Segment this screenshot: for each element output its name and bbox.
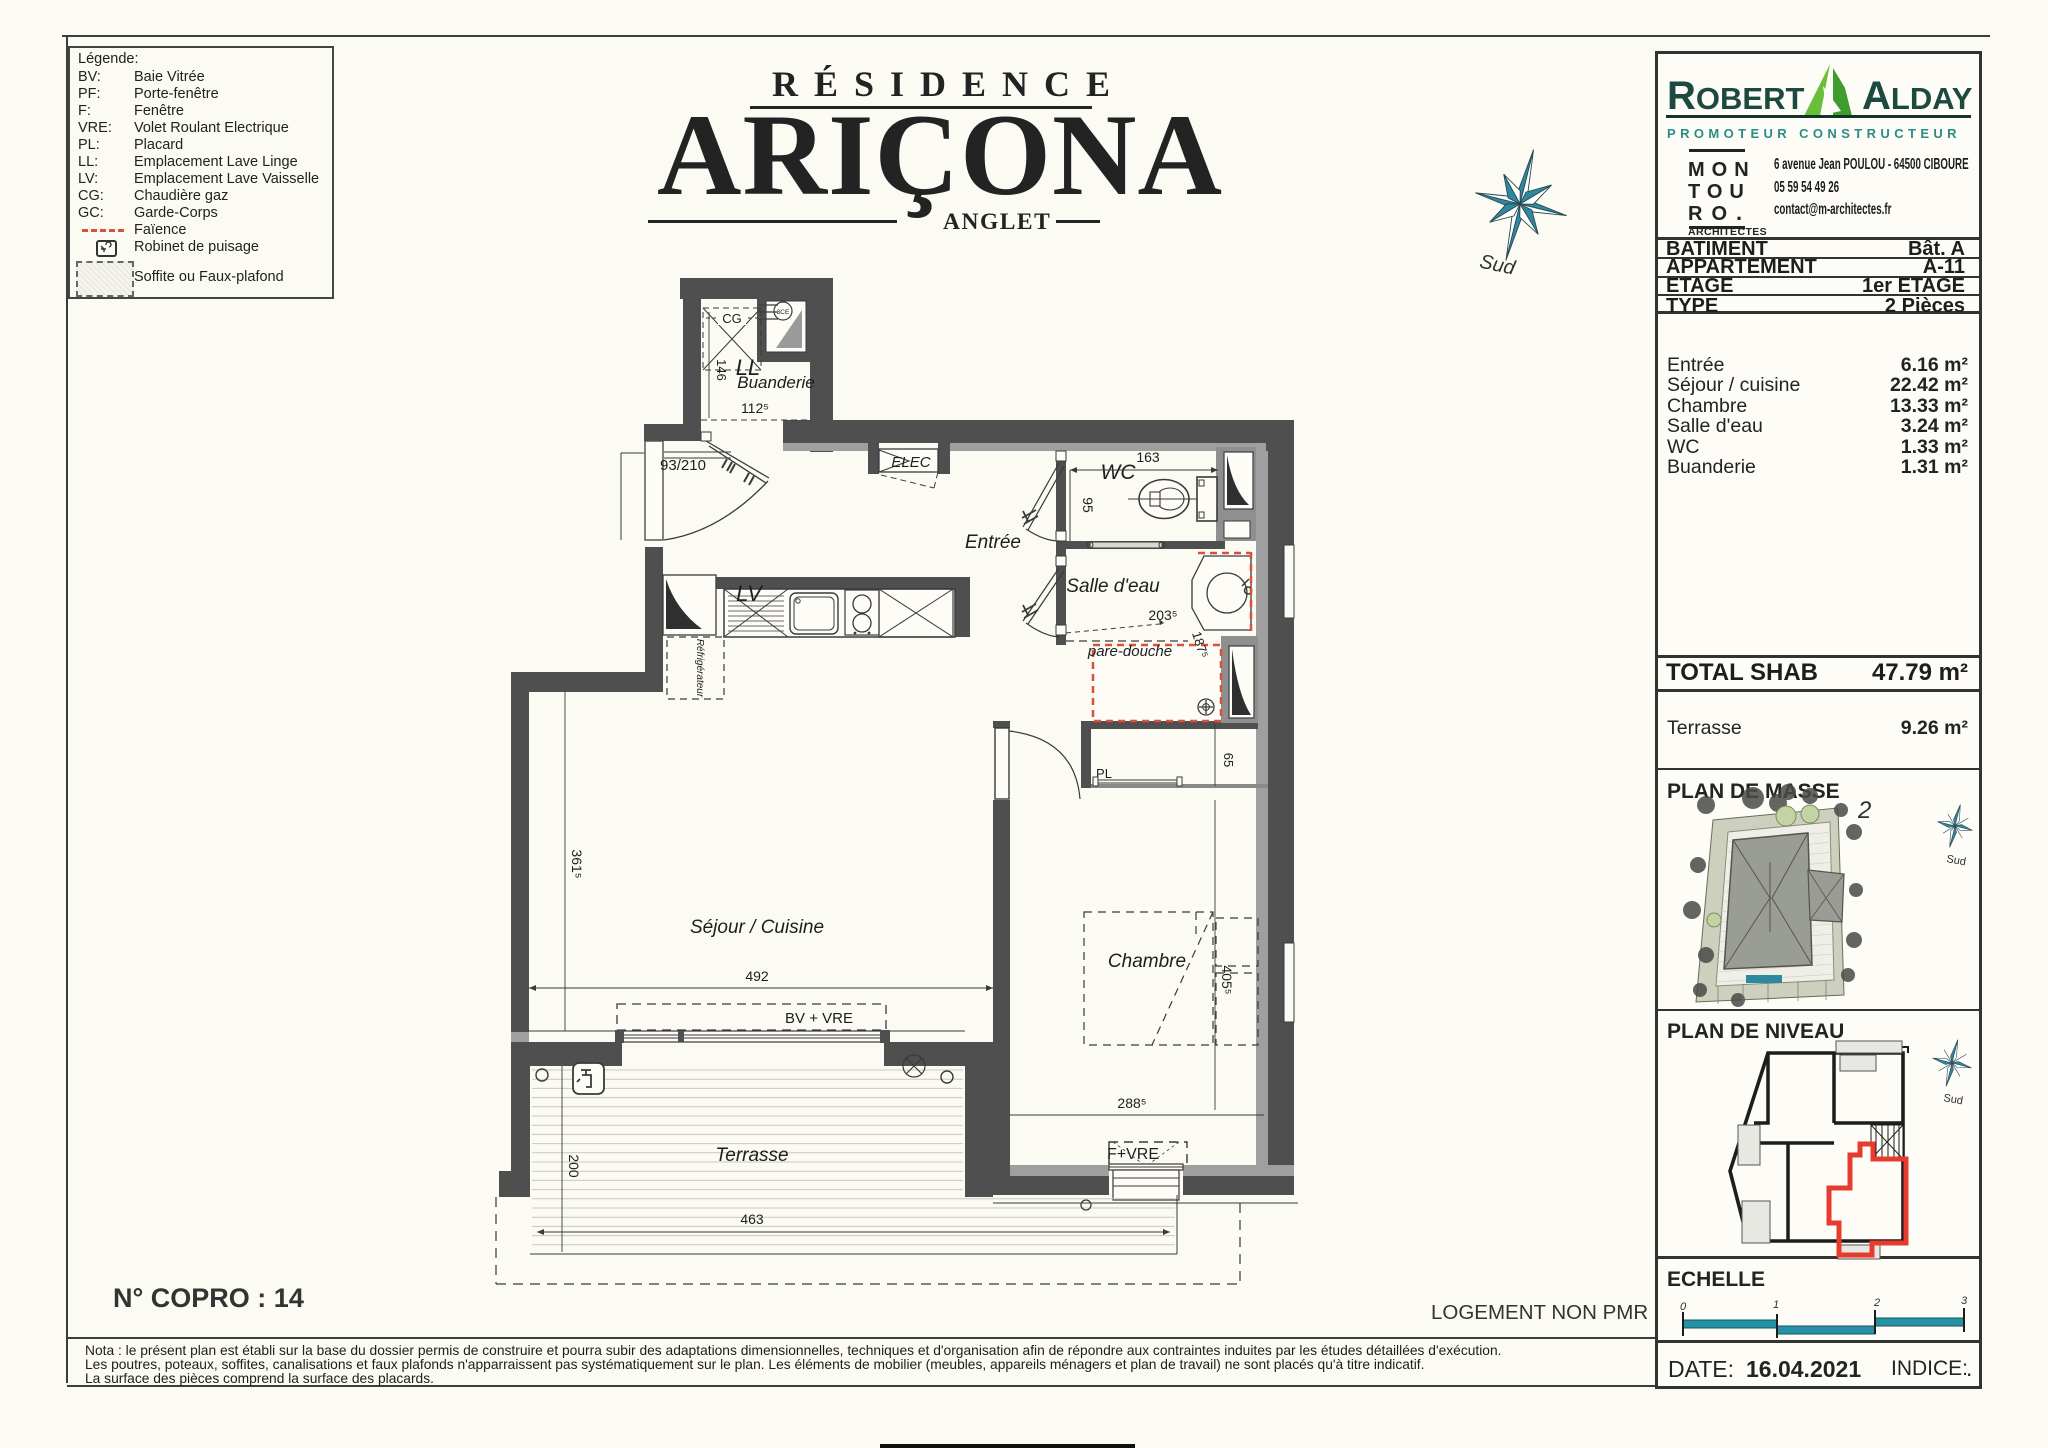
svg-text:163: 163	[1136, 449, 1160, 465]
svg-text:MON: MON	[1688, 159, 1756, 181]
svg-text:146: 146	[714, 359, 729, 381]
svg-text:65: 65	[1221, 753, 1236, 767]
svg-text:203⁵: 203⁵	[1148, 607, 1177, 623]
svg-text:95: 95	[1080, 497, 1096, 513]
svg-text:Salle d'eau: Salle d'eau	[1066, 576, 1160, 597]
svg-text:05 59 54 49 26: 05 59 54 49 26	[1774, 178, 1839, 196]
svg-text:2: 2	[1857, 797, 1871, 824]
svg-text:Sud: Sud	[1945, 853, 1966, 868]
svg-text:pare-douche: pare-douche	[1087, 643, 1172, 660]
svg-text:Séjour / Cuisine: Séjour / Cuisine	[690, 917, 824, 938]
svg-text:contact@m-architectes.fr: contact@m-architectes.fr	[1774, 200, 1891, 218]
svg-text:BV + VRE: BV + VRE	[785, 1010, 853, 1027]
svg-text:112⁵: 112⁵	[741, 400, 769, 416]
svg-text:PROMOTEUR CONSTRUCTEUR: PROMOTEUR CONSTRUCTEUR	[1667, 126, 1961, 141]
svg-text:3CE: 3CE	[777, 309, 790, 316]
svg-text:405⁵: 405⁵	[1219, 965, 1235, 994]
svg-text:RO.: RO.	[1688, 200, 1742, 225]
svg-text:1: 1	[1773, 1299, 1779, 1311]
svg-text:ROBERT: ROBERT	[1667, 74, 1804, 118]
svg-text:Sud: Sud	[1942, 1092, 1963, 1107]
svg-text:492: 492	[745, 968, 769, 984]
svg-text:Sud: Sud	[1478, 251, 1518, 280]
svg-text:288⁵: 288⁵	[1117, 1095, 1146, 1111]
svg-text:Terrasse: Terrasse	[715, 1145, 788, 1166]
svg-text:WC: WC	[1101, 461, 1137, 484]
svg-text:463: 463	[740, 1211, 764, 1227]
svg-text:Buanderie: Buanderie	[737, 373, 815, 392]
svg-text:LV: LV	[736, 581, 764, 606]
svg-text:CG: CG	[722, 311, 742, 326]
svg-text:Chambre: Chambre	[1108, 951, 1186, 972]
svg-text:0: 0	[1680, 1301, 1687, 1313]
svg-text:200: 200	[566, 1154, 582, 1178]
svg-text:ALDAY: ALDAY	[1862, 74, 1973, 118]
svg-text:ELEC: ELEC	[891, 454, 930, 471]
svg-text:361⁵: 361⁵	[569, 849, 585, 878]
svg-text:Réfrigérateur: Réfrigérateur	[694, 639, 705, 698]
svg-text:2: 2	[1873, 1297, 1880, 1309]
svg-text:Entrée: Entrée	[965, 532, 1021, 553]
svg-text:93/210: 93/210	[660, 457, 706, 474]
svg-text:6 avenue Jean POULOU - 64500 C: 6 avenue Jean POULOU - 64500 CIBOURE	[1774, 155, 1969, 173]
svg-text:F+VRE: F+VRE	[1107, 1146, 1159, 1163]
svg-text:3: 3	[1961, 1295, 1968, 1307]
